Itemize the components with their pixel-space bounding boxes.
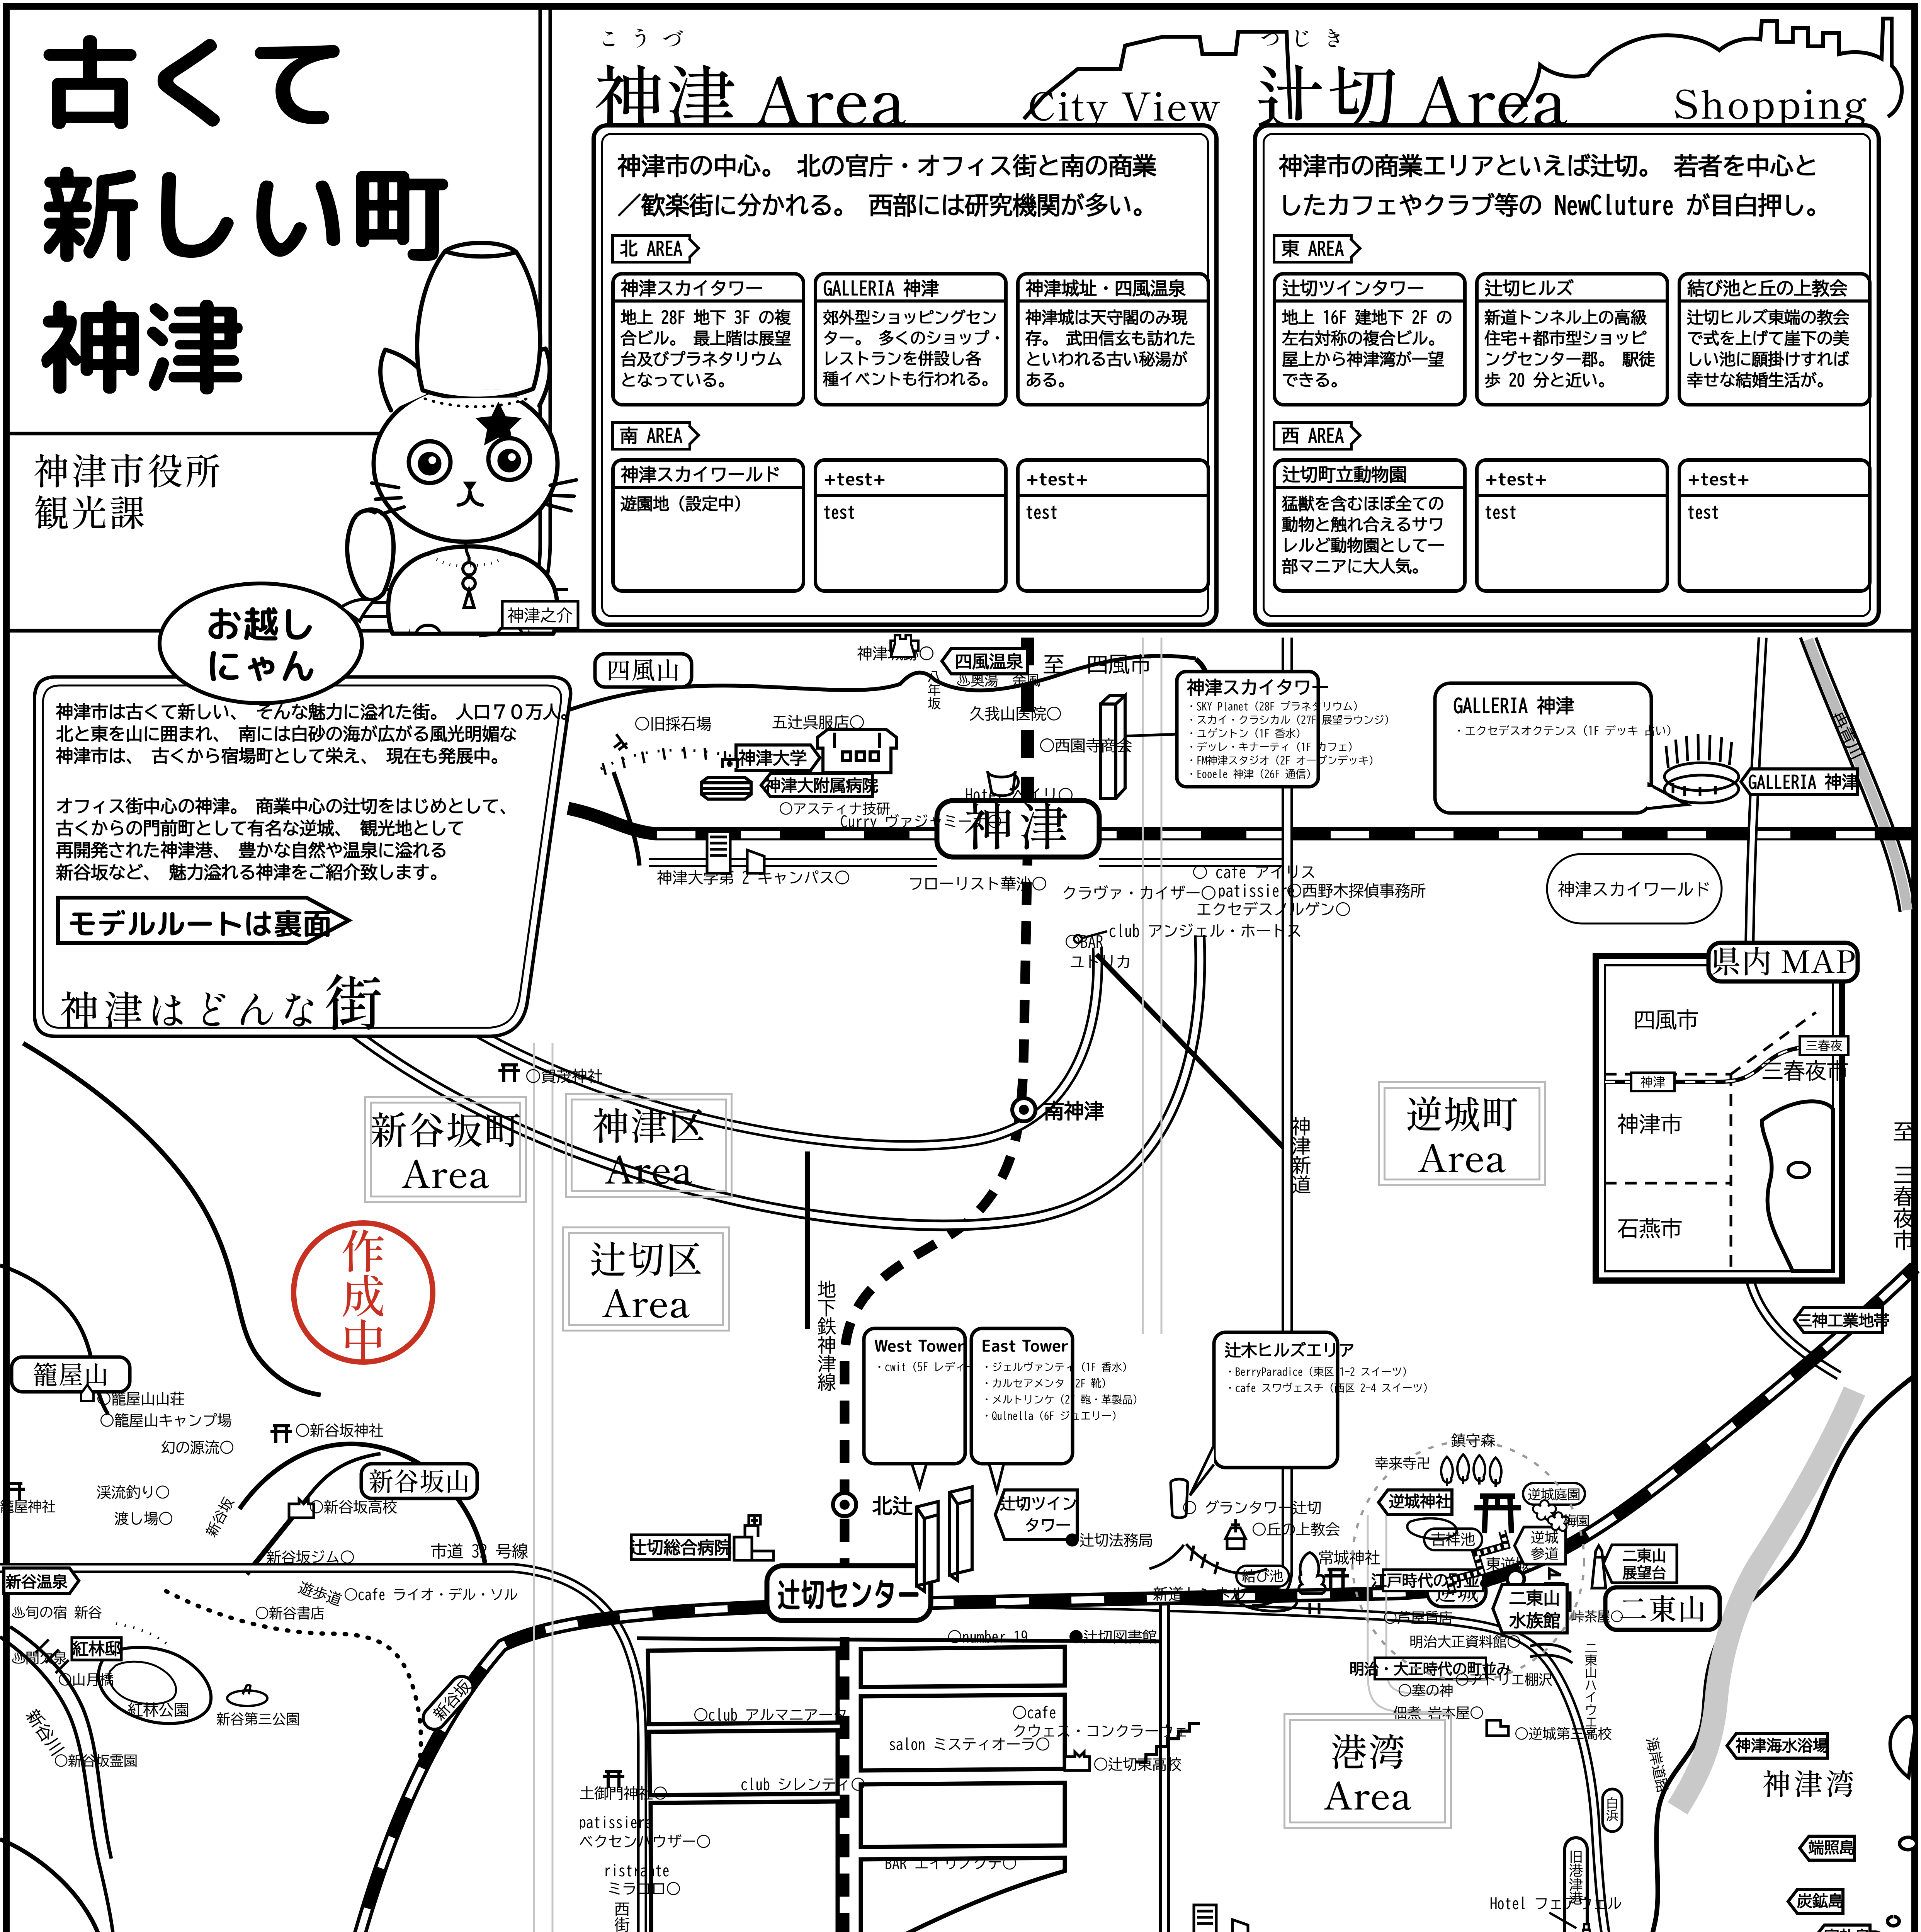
svg-text:神津スカイワールド: 神津スカイワールド — [1558, 881, 1711, 898]
svg-text:中: 中 — [340, 1305, 386, 1371]
svg-text:遊歩道: 遊歩道 — [297, 1580, 343, 1607]
svg-text:○丘の上教会: ○丘の上教会 — [1252, 1522, 1340, 1537]
svg-text:patissiere: patissiere — [579, 1815, 652, 1830]
svg-text:○旧採石場: ○旧採石場 — [634, 716, 712, 731]
svg-text:二東山ハイウエイ: 二東山ハイウエイ — [1585, 1641, 1597, 1740]
svg-text:籠屋山: 籠屋山 — [32, 1355, 109, 1392]
svg-text:East Tower: East Tower — [981, 1335, 1069, 1357]
svg-text:石燕市: 石燕市 — [1617, 1218, 1682, 1239]
svg-text:渓流釣り○: 渓流釣り○ — [97, 1485, 170, 1500]
svg-text:参道: 参道 — [1531, 1547, 1559, 1561]
svg-text:・カルセアメンタ（2F 靴）: ・カルセアメンタ（2F 靴） — [981, 1378, 1112, 1389]
svg-text:新谷第三公園: 新谷第三公園 — [216, 1712, 300, 1726]
svg-text:逆城: 逆城 — [1531, 1531, 1559, 1544]
svg-text:○芦屋質店: ○芦屋質店 — [1383, 1611, 1453, 1625]
svg-text:♨間欠泉: ♨間欠泉 — [12, 1651, 67, 1665]
svg-text:○塞の神: ○塞の神 — [1398, 1683, 1453, 1697]
svg-text:○西野木探偵事務所: ○西野木探偵事務所 — [1287, 883, 1426, 898]
svg-text:市道 32 号線: 市道 32 号線 — [431, 1543, 528, 1560]
svg-text:フローリスト華沙○: フローリスト華沙○ — [908, 876, 1047, 891]
svg-text:常城神社: 常城神社 — [1318, 1550, 1380, 1565]
svg-text:ユトリカ: ユトリカ — [1069, 954, 1131, 969]
svg-text:神津湾: 神津湾 — [1762, 1761, 1857, 1803]
svg-text:炭鉱島: 炭鉱島 — [1797, 1893, 1843, 1908]
svg-text:○アトリエ棚沢: ○アトリエ棚沢 — [1455, 1672, 1552, 1687]
svg-text:籠屋神社: 籠屋神社 — [0, 1499, 56, 1514]
svg-text:○ グランタワー辻切: ○ グランタワー辻切 — [1182, 1500, 1322, 1515]
svg-text:展望台: 展望台 — [1622, 1565, 1666, 1580]
svg-text:三春夜市: 三春夜市 — [1762, 1060, 1848, 1082]
svg-text:Curry ヴァジャミーナ○: Curry ヴァジャミーナ○ — [840, 814, 1002, 829]
svg-text:○逆城第三高校: ○逆城第三高校 — [1515, 1726, 1612, 1741]
svg-text:至 三春夜市: 至 三春夜市 — [1893, 1121, 1915, 1250]
svg-text:新谷川: 新谷川 — [24, 1707, 66, 1759]
svg-text:端照島: 端照島 — [1808, 1840, 1855, 1855]
svg-text:クラヴァ・カイザー○: クラヴァ・カイザー○ — [1062, 885, 1216, 901]
svg-text:新道トンネル: 新道トンネル — [1153, 1586, 1246, 1602]
svg-text:●辻切法務局: ●辻切法務局 — [1065, 1533, 1153, 1548]
svg-text:○number 19: ○number 19 — [947, 1629, 1028, 1644]
svg-text:新谷坂山: 新谷坂山 — [368, 1461, 470, 1498]
svg-text:至 四風市: 至 四風市 — [1043, 653, 1151, 675]
svg-text:北辻: 北辻 — [872, 1495, 913, 1516]
svg-text:・メルトリンケ（2F 鞄・革製品）: ・メルトリンケ（2F 鞄・革製品） — [981, 1394, 1143, 1405]
svg-text:・BerryParadice（東区 1-2 スイーツ）: ・BerryParadice（東区 1-2 スイーツ） — [1225, 1367, 1413, 1377]
svg-text:・スカイ・クラシカル（27F 展望ラウンジ）: ・スカイ・クラシカル（27F 展望ラウンジ） — [1186, 714, 1395, 725]
svg-text:タワー: タワー — [1025, 1517, 1071, 1533]
svg-text:○山月橋: ○山月橋 — [58, 1672, 114, 1687]
svg-text:白浜: 白浜 — [1606, 1797, 1618, 1821]
svg-text:patissiere: patissiere — [1218, 883, 1295, 898]
svg-text:神津海水浴場: 神津海水浴場 — [1735, 1737, 1828, 1753]
svg-text:・Qulnella（6F ジュエリー）: ・Qulnella（6F ジュエリー） — [981, 1411, 1122, 1421]
svg-text:渡し場○: 渡し場○ — [114, 1511, 173, 1526]
svg-text:○club アルマニアータ: ○club アルマニアータ — [694, 1708, 848, 1722]
svg-text:富礼島: 富礼島 — [1824, 1929, 1870, 1932]
svg-text:・デッレ・キナーティ（1F カフェ）: ・デッレ・キナーティ（1F カフェ） — [1186, 742, 1358, 752]
svg-text:鎮守森: 鎮守森 — [1451, 1433, 1495, 1448]
svg-text:幻の源流○: 幻の源流○ — [161, 1440, 234, 1455]
svg-text:♨旬の宿 新谷: ♨旬の宿 新谷 — [12, 1605, 102, 1619]
svg-text:八年坂: 八年坂 — [928, 670, 941, 710]
svg-text:紅林公園: 紅林公園 — [127, 1702, 189, 1718]
svg-text:神津: 神津 — [1640, 1076, 1665, 1088]
svg-text:・ジェルヴァンティ (1F 香水): ・ジェルヴァンティ (1F 香水) — [981, 1362, 1127, 1372]
svg-text:逆城神社: 逆城神社 — [1389, 1493, 1451, 1509]
svg-text:幸来寺卍: 幸来寺卍 — [1375, 1456, 1430, 1470]
svg-text:club シレンティ○: club シレンティ○ — [741, 1777, 865, 1792]
svg-text:梅園: 梅園 — [1563, 1514, 1589, 1527]
svg-text:四風市: 四風市 — [1634, 1009, 1698, 1031]
svg-text:四風山: 四風山 — [606, 651, 680, 687]
svg-text:ristrante: ristrante — [603, 1863, 670, 1878]
svg-text:・cafe スワヴェスチ（西区 2-4 スイーツ）: ・cafe スワヴェスチ（西区 2-4 スイーツ） — [1225, 1383, 1433, 1393]
svg-text:○新谷坂霊園: ○新谷坂霊園 — [54, 1754, 138, 1768]
svg-text:・エクセデスオクテンス（1F デッキ 占い）: ・エクセデスオクテンス（1F デッキ 占い） — [1453, 725, 1678, 736]
svg-text:新谷坂ジム○: 新谷坂ジム○ — [267, 1550, 355, 1565]
svg-text:GALLERIA 神津: GALLERIA 神津 — [1453, 696, 1574, 715]
svg-text:・ユゲントン（1F 香水）: ・ユゲントン（1F 香水） — [1186, 728, 1306, 739]
svg-text:辻切ツイン: 辻切ツイン — [1000, 1495, 1077, 1512]
svg-text:●辻切図書館: ●辻切図書館 — [1069, 1629, 1157, 1644]
svg-text:○賀茂神社: ○賀茂神社 — [525, 1068, 603, 1084]
svg-text:♨奥湯 余風: ♨奥湯 余風 — [957, 673, 1040, 687]
svg-text:水族館: 水族館 — [1509, 1612, 1560, 1629]
svg-text:Hotel フェアウェル: Hotel フェアウェル — [1490, 1896, 1622, 1911]
svg-text:二東山: 二東山 — [1618, 1586, 1707, 1628]
svg-text:県内 MAP: 県内 MAP — [1710, 937, 1856, 982]
svg-text:地下鉄神津線: 地下鉄神津線 — [818, 1280, 836, 1391]
svg-text:・Eooele 神津（26F 通信）: ・Eooele 神津（26F 通信） — [1186, 769, 1317, 779]
svg-text:エクセデスノルゲン○: エクセデスノルゲン○ — [1196, 901, 1351, 917]
svg-text:三春夜: 三春夜 — [1805, 1039, 1843, 1052]
svg-text:○アスティナ技研: ○アスティナ技研 — [779, 802, 890, 816]
svg-text:辻切センター: 辻切センター — [777, 1570, 921, 1618]
svg-text:土御門神社○: 土御門神社○ — [580, 1786, 668, 1801]
svg-text:GALLERIA 神津: GALLERIA 神津 — [1748, 773, 1859, 791]
svg-text:神津スカイタワー: 神津スカイタワー — [1187, 678, 1329, 696]
svg-text:○新谷坂高校: ○新谷坂高校 — [309, 1500, 397, 1514]
svg-text:○ cafe アイリス: ○ cafe アイリス — [1192, 864, 1316, 880]
svg-text:四風温泉: 四風温泉 — [955, 653, 1023, 670]
svg-text:○BAR: ○BAR — [1065, 934, 1103, 949]
svg-text:逆城庭園: 逆城庭園 — [1528, 1488, 1580, 1501]
svg-text:○新谷坂神社: ○新谷坂神社 — [295, 1423, 383, 1438]
svg-text:神津市: 神津市 — [1617, 1113, 1682, 1135]
svg-text:神津大附属病院: 神津大附属病院 — [765, 777, 878, 794]
svg-text:明治大正資料館○: 明治大正資料館○ — [1409, 1634, 1521, 1649]
svg-text:二東山: 二東山 — [1622, 1548, 1666, 1563]
svg-text:salon ミスティオーラ○: salon ミスティオーラ○ — [889, 1737, 1050, 1752]
svg-text:南神津: 南神津 — [1044, 1100, 1104, 1121]
svg-text:西街道: 西街道 — [614, 1901, 630, 1932]
svg-text:Hotel ヘイリ○: Hotel ヘイリ○ — [965, 787, 1073, 803]
svg-text:○辻切東高校: ○辻切東高校 — [1093, 1757, 1181, 1772]
svg-text:club アンジェル・ホートス: club アンジェル・ホートス — [1109, 923, 1302, 939]
svg-text:BAR エイリノクテ○: BAR エイリノクテ○ — [885, 1856, 1017, 1871]
svg-text:○西園寺商会: ○西園寺商会 — [1039, 738, 1132, 753]
svg-text:五辻呉服店○: 五辻呉服店○ — [772, 714, 865, 730]
svg-text:ベクセンハウザー○: ベクセンハウザー○ — [579, 1834, 711, 1849]
svg-text:ミラコロ○: ミラコロ○ — [607, 1881, 681, 1896]
svg-text:・FM神津スタジオ（2F オープンデッキ）: ・FM神津スタジオ（2F オープンデッキ） — [1186, 755, 1379, 766]
svg-text:神津大学: 神津大学 — [738, 749, 807, 767]
svg-text:○cafe: ○cafe — [1012, 1705, 1056, 1720]
svg-text:○新谷書店: ○新谷書店 — [255, 1606, 325, 1620]
svg-text:にゃん: にゃん — [206, 640, 316, 691]
svg-text:紅林邸: 紅林邸 — [72, 1640, 121, 1657]
svg-text:○籠屋山山荘: ○籠屋山山荘 — [97, 1391, 185, 1406]
svg-text:West Tower: West Tower — [874, 1335, 965, 1357]
svg-text:再青川: 再青川 — [1829, 708, 1867, 762]
svg-text:神津新道: 神津新道 — [1292, 1117, 1311, 1194]
svg-text:新谷温泉: 新谷温泉 — [5, 1573, 68, 1589]
svg-text:峠茶屋○: 峠茶屋○ — [1571, 1610, 1623, 1623]
svg-text:新谷坂: 新谷坂 — [204, 1495, 236, 1539]
svg-text:○cafe ライオ・デル・ソル: ○cafe ライオ・デル・ソル — [344, 1587, 518, 1602]
svg-text:辻木ヒルズエリア: 辻木ヒルズエリア — [1225, 1342, 1355, 1359]
svg-text:海岸道路: 海岸道路 — [1645, 1736, 1670, 1794]
svg-text:三神工業地帯: 三神工業地帯 — [1797, 1313, 1889, 1328]
svg-text:辻切総合病院: 辻切総合病院 — [629, 1539, 731, 1556]
svg-text:クウェス・コンクラーウェ: クウェス・コンクラーウェ — [1012, 1724, 1188, 1738]
svg-text:久我山医院○: 久我山医院○ — [969, 706, 1062, 721]
svg-text:神津之介: 神津之介 — [508, 607, 573, 624]
svg-text:○籠屋山キャンプ場: ○籠屋山キャンプ場 — [100, 1413, 232, 1428]
svg-text:二東山: 二東山 — [1509, 1589, 1560, 1607]
svg-text:・SKY Planet（28F プラネタリウム）: ・SKY Planet（28F プラネタリウム） — [1186, 701, 1363, 712]
